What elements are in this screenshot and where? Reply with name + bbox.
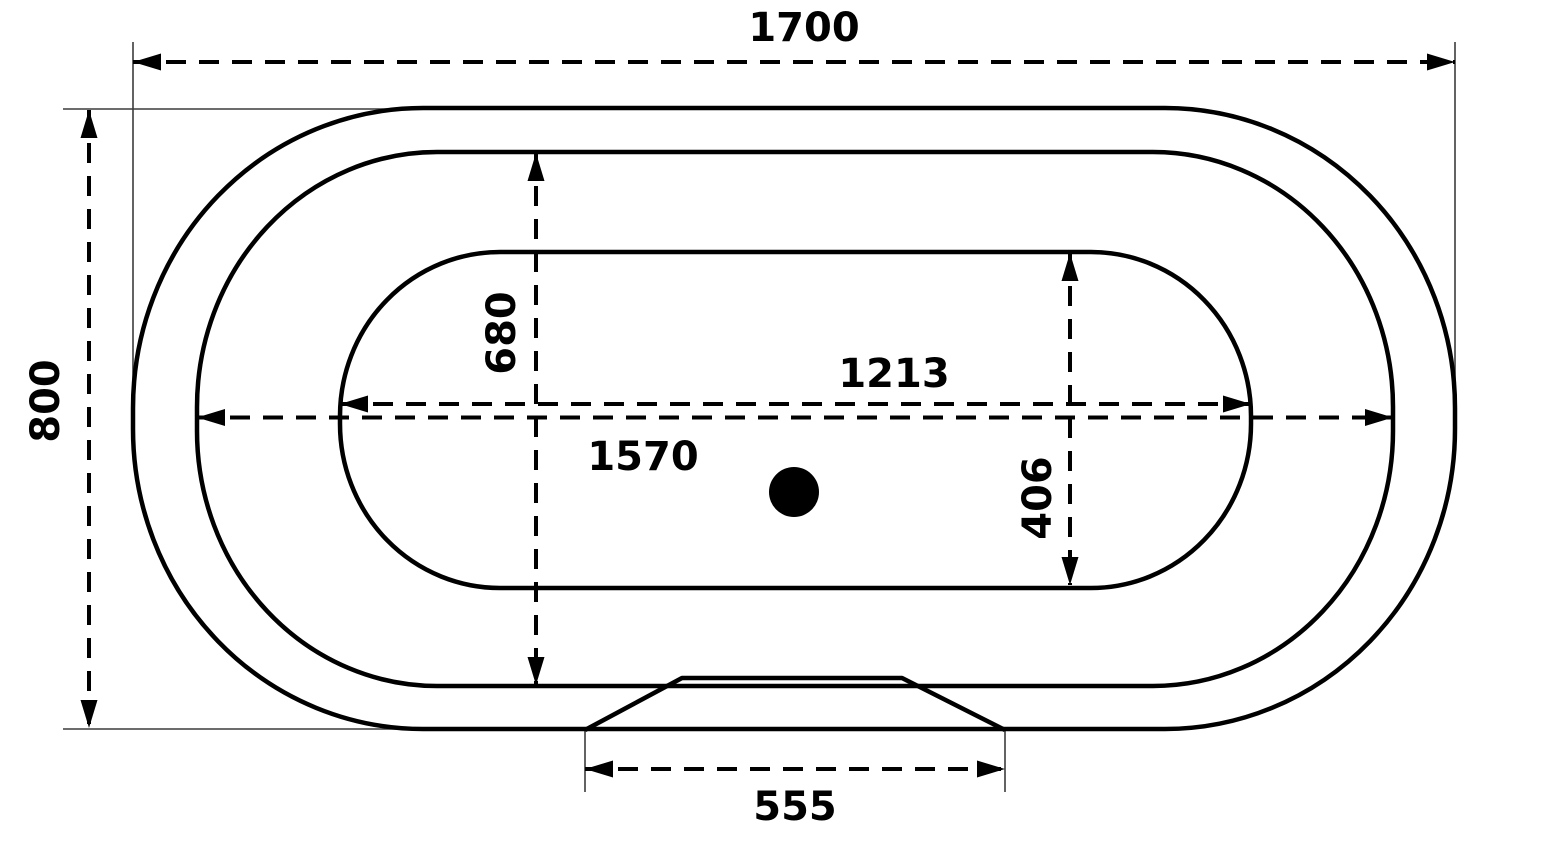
dim-label-rim-inner-length: 1570 — [587, 437, 698, 477]
drain-hole — [769, 467, 819, 517]
dim-overall-length — [133, 54, 1455, 71]
dim-label-rim-inner-width: 680 — [482, 291, 522, 375]
dim-label-apron-recess-width: 555 — [753, 787, 837, 827]
technical-drawing-canvas: 1700 800 680 1213 1570 406 555 — [0, 0, 1546, 848]
dim-label-basin-width: 406 — [1018, 456, 1058, 540]
dim-label-overall-width: 800 — [26, 359, 66, 443]
dim-apron-recess-width — [585, 761, 1005, 778]
dim-label-overall-length: 1700 — [748, 8, 859, 48]
tub-basin — [340, 252, 1251, 588]
dim-rim-inner-length — [197, 409, 1393, 426]
dim-overall-width — [81, 110, 98, 728]
dim-basin-length — [340, 396, 1251, 413]
dim-label-basin-length: 1213 — [838, 354, 949, 394]
drawing-svg — [0, 0, 1546, 848]
